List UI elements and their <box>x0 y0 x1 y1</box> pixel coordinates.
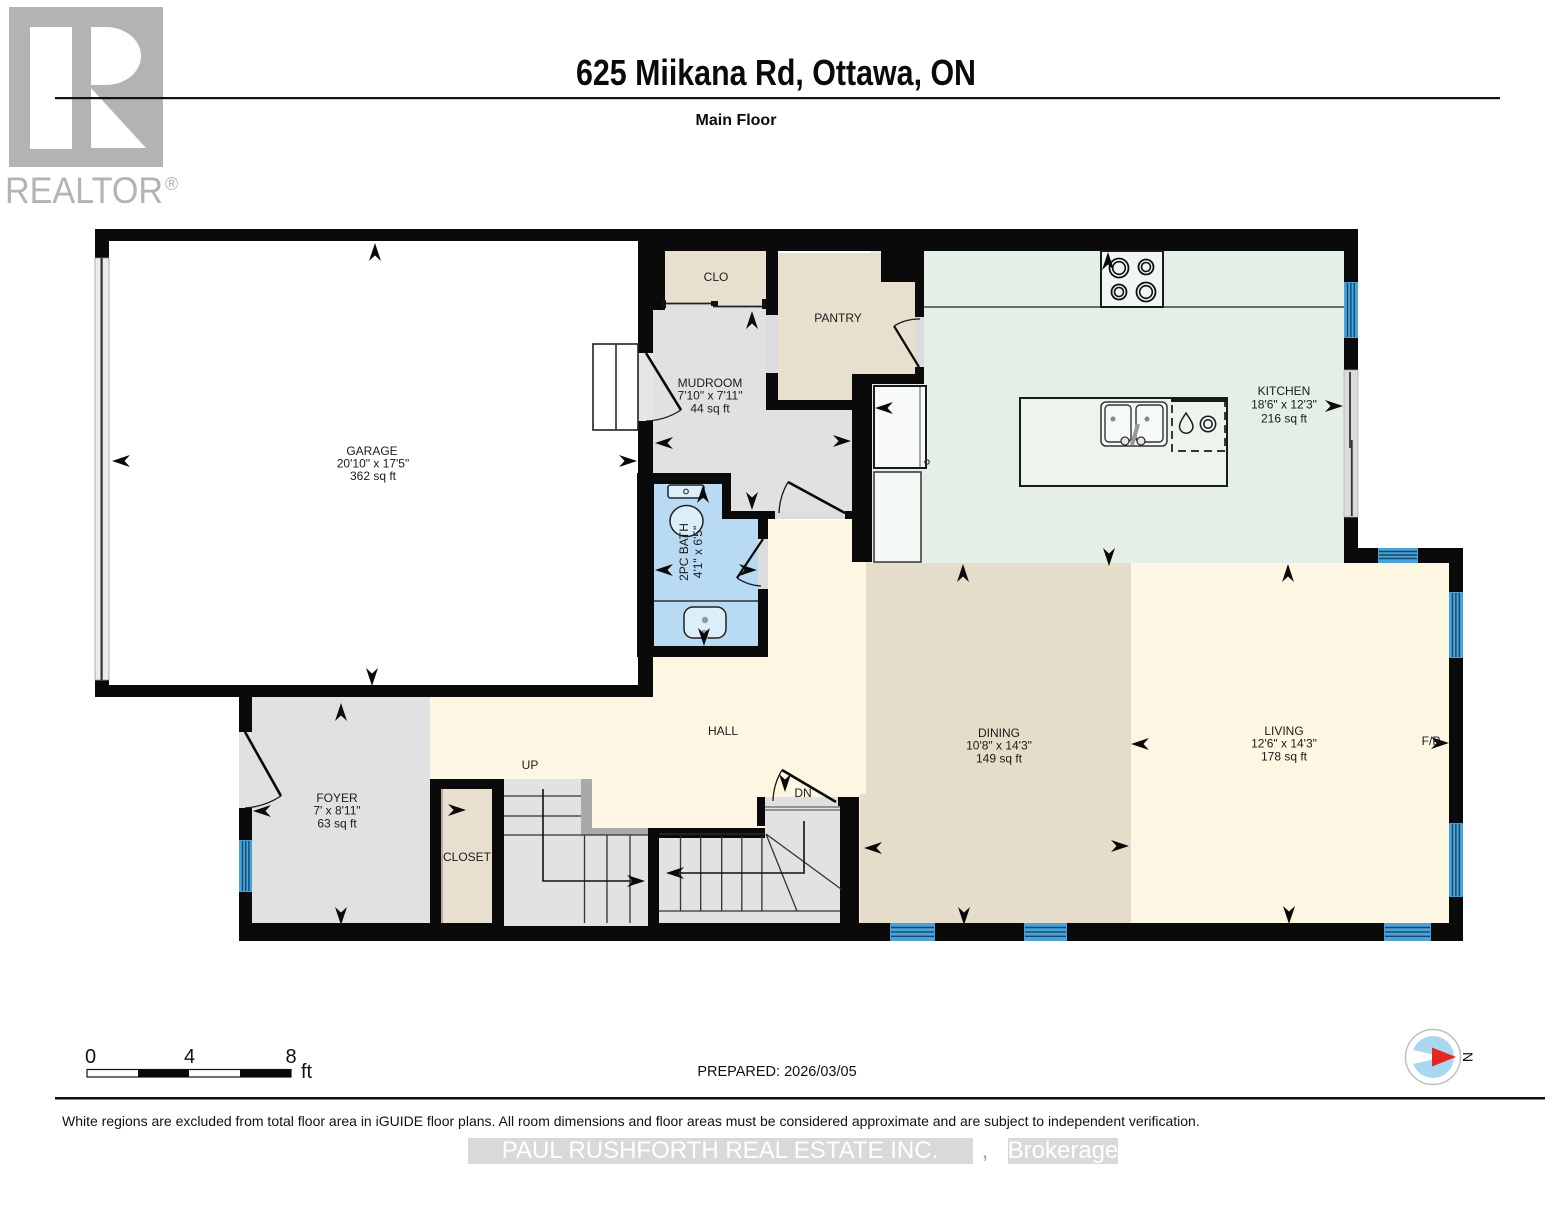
svg-text:REALTOR: REALTOR <box>5 170 163 211</box>
svg-text:4: 4 <box>184 1046 195 1068</box>
svg-text:CLOSET: CLOSET <box>443 850 492 864</box>
svg-text:UP: UP <box>522 758 539 772</box>
svg-text:N: N <box>1460 1052 1476 1062</box>
svg-text:F/P: F/P <box>1422 734 1441 748</box>
svg-text:PAUL RUSHFORTH REAL ESTATE INC: PAUL RUSHFORTH REAL ESTATE INC. <box>502 1137 939 1164</box>
svg-text:PANTRY: PANTRY <box>814 311 862 325</box>
svg-text:DN: DN <box>794 786 811 800</box>
svg-text:ft: ft <box>301 1061 313 1083</box>
svg-text:FOYER7' x 8'11"63 sq ft: FOYER7' x 8'11"63 sq ft <box>313 791 360 830</box>
svg-text:PREPARED: 2026/03/05: PREPARED: 2026/03/05 <box>697 1064 856 1080</box>
svg-text:,: , <box>982 1137 989 1164</box>
svg-text:625 Miikana Rd, Ottawa, ON: 625 Miikana Rd, Ottawa, ON <box>576 52 976 93</box>
svg-text:0: 0 <box>85 1046 96 1068</box>
svg-text:2PC BATH: 2PC BATH <box>677 523 691 581</box>
svg-text:8: 8 <box>285 1046 296 1068</box>
svg-text:4'1" x 6'5": 4'1" x 6'5" <box>691 526 705 578</box>
svg-text:White regions are excluded fro: White regions are excluded from total fl… <box>62 1113 1200 1129</box>
svg-text:CLO: CLO <box>704 270 729 284</box>
svg-text:Main Floor: Main Floor <box>696 112 777 129</box>
svg-text:HALL: HALL <box>708 724 738 738</box>
svg-text:Brokerage: Brokerage <box>1008 1137 1119 1164</box>
svg-text:®: ® <box>165 174 178 194</box>
